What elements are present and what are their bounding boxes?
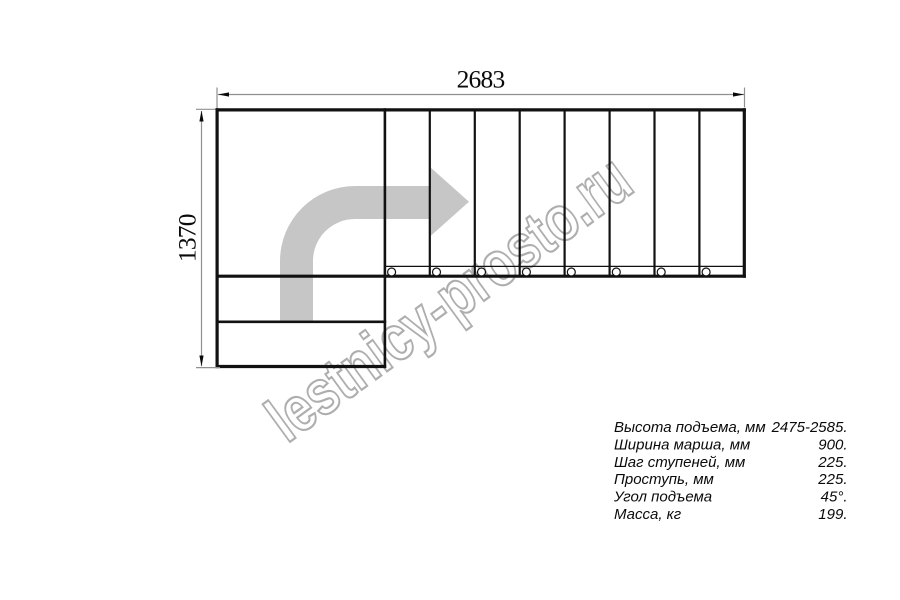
svg-text:45°.: 45°. bbox=[821, 489, 848, 506]
svg-text:900.: 900. bbox=[818, 436, 847, 453]
svg-text:199.: 199. bbox=[818, 506, 847, 523]
svg-text:Проступь, мм: Проступь, мм bbox=[614, 471, 714, 488]
svg-text:1370: 1370 bbox=[173, 214, 202, 262]
svg-text:Шаг ступеней, мм: Шаг ступеней, мм bbox=[614, 454, 745, 471]
svg-text:Ширина марша, мм: Ширина марша, мм bbox=[614, 436, 750, 453]
svg-text:2683: 2683 bbox=[457, 65, 505, 94]
svg-text:Высота подъема, мм: Высота подъема, мм bbox=[614, 419, 766, 436]
svg-text:Масса, кг: Масса, кг bbox=[614, 506, 682, 523]
svg-text:225.: 225. bbox=[817, 454, 847, 471]
svg-text:225.: 225. bbox=[817, 471, 847, 488]
svg-text:Угол подъема: Угол подъема bbox=[613, 489, 712, 506]
svg-text:2475-2585.: 2475-2585. bbox=[771, 419, 848, 436]
